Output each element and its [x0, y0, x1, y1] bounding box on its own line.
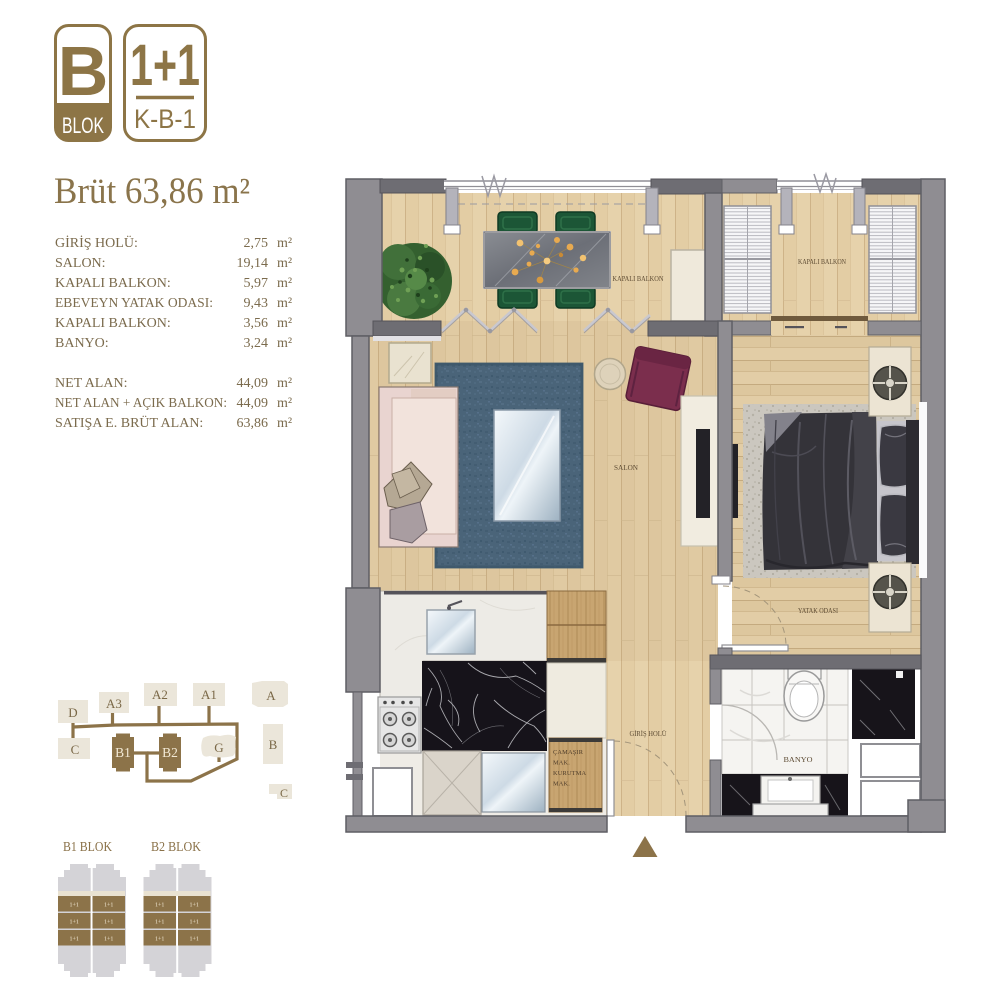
- svg-text:G: G: [214, 740, 223, 755]
- svg-text:1+1: 1+1: [155, 937, 164, 943]
- svg-text:1+1: 1+1: [190, 937, 199, 943]
- svg-text:m²: m²: [277, 376, 292, 391]
- svg-text:SALON: SALON: [614, 463, 638, 472]
- svg-text:1+1: 1+1: [190, 903, 199, 909]
- svg-text:EBEVEYN YATAK ODASI:: EBEVEYN YATAK ODASI:: [55, 296, 213, 311]
- svg-text:B: B: [269, 737, 278, 752]
- svg-text:B2 BLOK: B2 BLOK: [151, 840, 201, 855]
- svg-text:5,97: 5,97: [244, 276, 269, 291]
- svg-text:GİRİŞ HOLÜ:: GİRİŞ HOLÜ:: [55, 234, 138, 251]
- svg-text:m²: m²: [277, 256, 292, 271]
- svg-text:YATAK ODASI: YATAK ODASI: [798, 606, 838, 615]
- svg-text:BANYO: BANYO: [784, 755, 814, 764]
- svg-text:K-B-1: K-B-1: [134, 104, 196, 134]
- svg-text:1+1: 1+1: [70, 920, 79, 926]
- svg-text:2,75: 2,75: [244, 236, 269, 251]
- svg-text:m²: m²: [277, 396, 292, 411]
- svg-text:MAK.: MAK.: [553, 760, 570, 767]
- svg-text:m²: m²: [277, 236, 292, 251]
- svg-text:1+1: 1+1: [104, 903, 113, 909]
- svg-text:m²: m²: [277, 416, 292, 431]
- svg-text:Brüt 63,86 m²: Brüt 63,86 m²: [54, 171, 250, 212]
- svg-text:44,09: 44,09: [237, 396, 269, 411]
- svg-text:1+1: 1+1: [155, 920, 164, 926]
- svg-text:SATIŞA E. BRÜT ALAN:: SATIŞA E. BRÜT ALAN:: [55, 414, 203, 431]
- svg-text:1+1: 1+1: [130, 33, 200, 98]
- svg-text:3,24: 3,24: [244, 336, 269, 351]
- svg-text:KAPALI BALKON: KAPALI BALKON: [613, 274, 664, 283]
- svg-text:GİRİŞ HOLÜ: GİRİŞ HOLÜ: [630, 729, 667, 738]
- svg-text:1+1: 1+1: [104, 920, 113, 926]
- svg-text:MAK.: MAK.: [553, 781, 570, 788]
- svg-text:NET ALAN:: NET ALAN:: [55, 376, 127, 391]
- svg-text:KAPALI BALKON:: KAPALI BALKON:: [55, 276, 171, 291]
- svg-text:B1: B1: [115, 745, 131, 760]
- svg-text:1+1: 1+1: [70, 903, 79, 909]
- svg-text:B1 BLOK: B1 BLOK: [63, 840, 112, 855]
- svg-text:m²: m²: [277, 316, 292, 331]
- svg-text:SALON:: SALON:: [55, 256, 106, 271]
- svg-text:BLOK: BLOK: [62, 113, 104, 138]
- svg-text:C: C: [280, 786, 288, 800]
- svg-text:3,56: 3,56: [244, 316, 269, 331]
- svg-text:m²: m²: [277, 296, 292, 311]
- svg-text:1+1: 1+1: [155, 903, 164, 909]
- svg-text:A1: A1: [201, 687, 217, 702]
- svg-text:1+1: 1+1: [70, 937, 79, 943]
- svg-text:m²: m²: [277, 276, 292, 291]
- svg-text:D: D: [68, 705, 77, 720]
- svg-text:KAPALI BALKON:: KAPALI BALKON:: [55, 316, 171, 331]
- svg-text:63,86: 63,86: [237, 416, 269, 431]
- svg-text:19,14: 19,14: [237, 256, 269, 271]
- svg-text:9,43: 9,43: [244, 296, 269, 311]
- svg-text:B: B: [58, 32, 109, 110]
- svg-text:KURUTMA: KURUTMA: [553, 770, 586, 777]
- svg-text:A3: A3: [106, 696, 122, 711]
- svg-text:NET ALAN + AÇIK BALKON:: NET ALAN + AÇIK BALKON:: [55, 396, 227, 411]
- svg-text:44,09: 44,09: [237, 376, 269, 391]
- svg-text:KAPALI BALKON: KAPALI BALKON: [798, 257, 846, 266]
- svg-text:B2: B2: [162, 745, 178, 760]
- svg-text:C: C: [71, 742, 80, 757]
- svg-text:1+1: 1+1: [190, 920, 199, 926]
- svg-text:BANYO:: BANYO:: [55, 336, 109, 351]
- svg-text:m²: m²: [277, 336, 292, 351]
- svg-text:1+1: 1+1: [104, 937, 113, 943]
- svg-text:A2: A2: [152, 687, 168, 702]
- svg-text:A: A: [266, 688, 276, 703]
- svg-text:ÇAMAŞIR: ÇAMAŞIR: [553, 749, 584, 756]
